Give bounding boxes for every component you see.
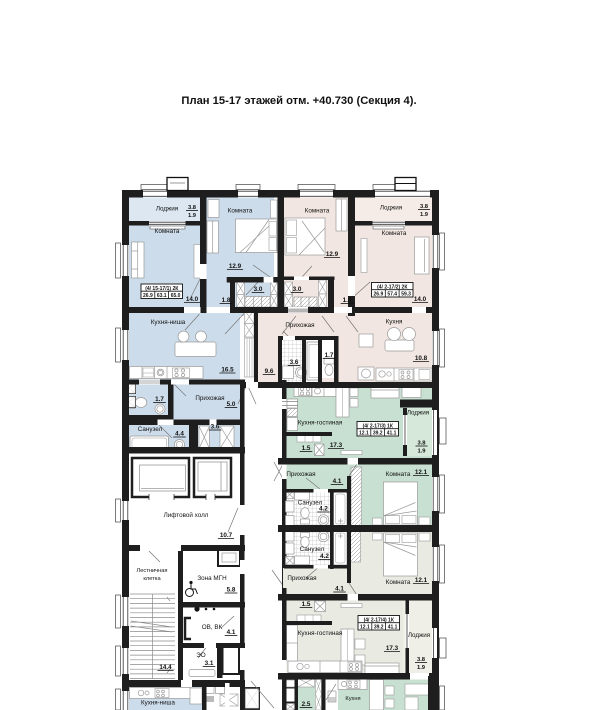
svg-text:1.7: 1.7 — [325, 352, 334, 359]
svg-text:12.1: 12.1 — [415, 577, 428, 584]
svg-text:3.6: 3.6 — [211, 424, 220, 431]
svg-text:Санузел: Санузел — [138, 426, 163, 433]
svg-text:59.3: 59.3 — [401, 291, 411, 297]
svg-text:2.5: 2.5 — [302, 701, 311, 708]
svg-text:5.8: 5.8 — [227, 587, 236, 594]
svg-text:17.3: 17.3 — [330, 442, 343, 449]
svg-text:12.9: 12.9 — [326, 251, 339, 258]
svg-text:4.2: 4.2 — [319, 506, 328, 513]
svg-text:14.4: 14.4 — [159, 664, 172, 671]
svg-text:10.8: 10.8 — [415, 355, 428, 362]
svg-text:4.1: 4.1 — [227, 629, 236, 636]
svg-text:Санузел: Санузел — [300, 546, 325, 553]
svg-text:1.8: 1.8 — [222, 297, 231, 304]
svg-text:12.1: 12.1 — [359, 430, 369, 436]
svg-text:17.3: 17.3 — [386, 645, 399, 652]
svg-text:1.9: 1.9 — [417, 665, 426, 671]
svg-text:Прихожая: Прихожая — [285, 322, 314, 329]
svg-text:14.0: 14.0 — [414, 296, 427, 303]
svg-text:Кухня: Кухня — [386, 319, 403, 326]
svg-text:Прихожая: Прихожая — [287, 575, 316, 582]
svg-text:3.6: 3.6 — [290, 359, 299, 366]
svg-text:клетка: клетка — [143, 576, 161, 582]
svg-text:Кухня-ниша: Кухня-ниша — [151, 319, 186, 326]
svg-text:Зона МГН: Зона МГН — [197, 575, 227, 582]
svg-text:12.1: 12.1 — [360, 624, 370, 630]
svg-text:Кухня-ниша: Кухня-ниша — [141, 700, 175, 707]
svg-text:41.1: 41.1 — [388, 624, 398, 630]
svg-text:5.0: 5.0 — [227, 401, 236, 408]
svg-text:ОВ, ВК: ОВ, ВК — [202, 624, 223, 631]
svg-text:14.0: 14.0 — [186, 296, 199, 303]
svg-text:Кухня-гостиная: Кухня-гостиная — [298, 420, 343, 427]
svg-text:3.0: 3.0 — [293, 286, 302, 293]
svg-text:Кухня-гостиная: Кухня-гостиная — [298, 630, 343, 637]
svg-text:Лестничная: Лестничная — [136, 568, 167, 574]
svg-text:Прихожая: Прихожая — [195, 395, 224, 402]
svg-text:3.0: 3.0 — [254, 286, 263, 293]
svg-text:41.1: 41.1 — [387, 430, 397, 436]
svg-text:Кухня: Кухня — [345, 696, 360, 702]
svg-text:(4/ 2-17/4) 1К: (4/ 2-17/4) 1К — [364, 617, 395, 623]
svg-text:1.5: 1.5 — [302, 601, 311, 608]
svg-text:1.7: 1.7 — [155, 396, 164, 403]
svg-text:39.2: 39.2 — [374, 624, 384, 630]
svg-text:16.5: 16.5 — [221, 367, 234, 374]
svg-text:ЭО: ЭО — [196, 652, 206, 659]
svg-text:4.1: 4.1 — [335, 586, 344, 593]
svg-text:4.2: 4.2 — [320, 553, 329, 560]
svg-text:9.6: 9.6 — [265, 368, 274, 375]
svg-text:4.1: 4.1 — [333, 478, 342, 485]
svg-text:26.9: 26.9 — [374, 291, 384, 297]
svg-text:1.8: 1.8 — [343, 297, 352, 304]
svg-text:63.1: 63.1 — [157, 293, 167, 299]
svg-text:12.9: 12.9 — [229, 263, 242, 270]
svg-text:1.5: 1.5 — [302, 445, 311, 452]
svg-text:Лифтовой холл: Лифтовой холл — [164, 511, 209, 519]
svg-text:Лоджия: Лоджия — [408, 632, 430, 639]
svg-text:Комната: Комната — [155, 228, 180, 235]
svg-text:26.9: 26.9 — [143, 293, 153, 299]
svg-text:4.4: 4.4 — [175, 431, 184, 438]
svg-text:Лоджия: Лоджия — [380, 205, 402, 212]
svg-text:3.1: 3.1 — [205, 660, 214, 667]
svg-text:Комната: Комната — [228, 208, 253, 215]
svg-text:Прихожая: Прихожая — [286, 471, 315, 478]
svg-text:10.7: 10.7 — [220, 532, 233, 539]
svg-text:(4/ 2-17/3) 1К: (4/ 2-17/3) 1К — [363, 423, 394, 429]
svg-text:1.9: 1.9 — [188, 213, 197, 219]
svg-text:12.1: 12.1 — [415, 469, 428, 476]
svg-text:Комната: Комната — [386, 579, 411, 586]
svg-text:Лоджия: Лоджия — [407, 410, 429, 417]
svg-text:57.4: 57.4 — [387, 291, 397, 297]
svg-text:План 15-17 этажей отм. +40.730: План 15-17 этажей отм. +40.730 (Секция 4… — [181, 95, 416, 107]
svg-text:(4/ 15-17/1) 2К: (4/ 15-17/1) 2К — [145, 286, 179, 292]
svg-text:39.2: 39.2 — [373, 430, 383, 436]
svg-text:Комната: Комната — [386, 471, 411, 478]
svg-text:1.9: 1.9 — [417, 449, 426, 455]
svg-text:1.9: 1.9 — [420, 212, 429, 218]
svg-text:65.0: 65.0 — [171, 293, 181, 299]
svg-text:Лоджия: Лоджия — [156, 206, 178, 213]
svg-text:(4/ 2-17/2) 2К: (4/ 2-17/2) 2К — [377, 284, 408, 290]
svg-text:Комната: Комната — [382, 230, 407, 237]
svg-text:Комната: Комната — [305, 208, 330, 215]
